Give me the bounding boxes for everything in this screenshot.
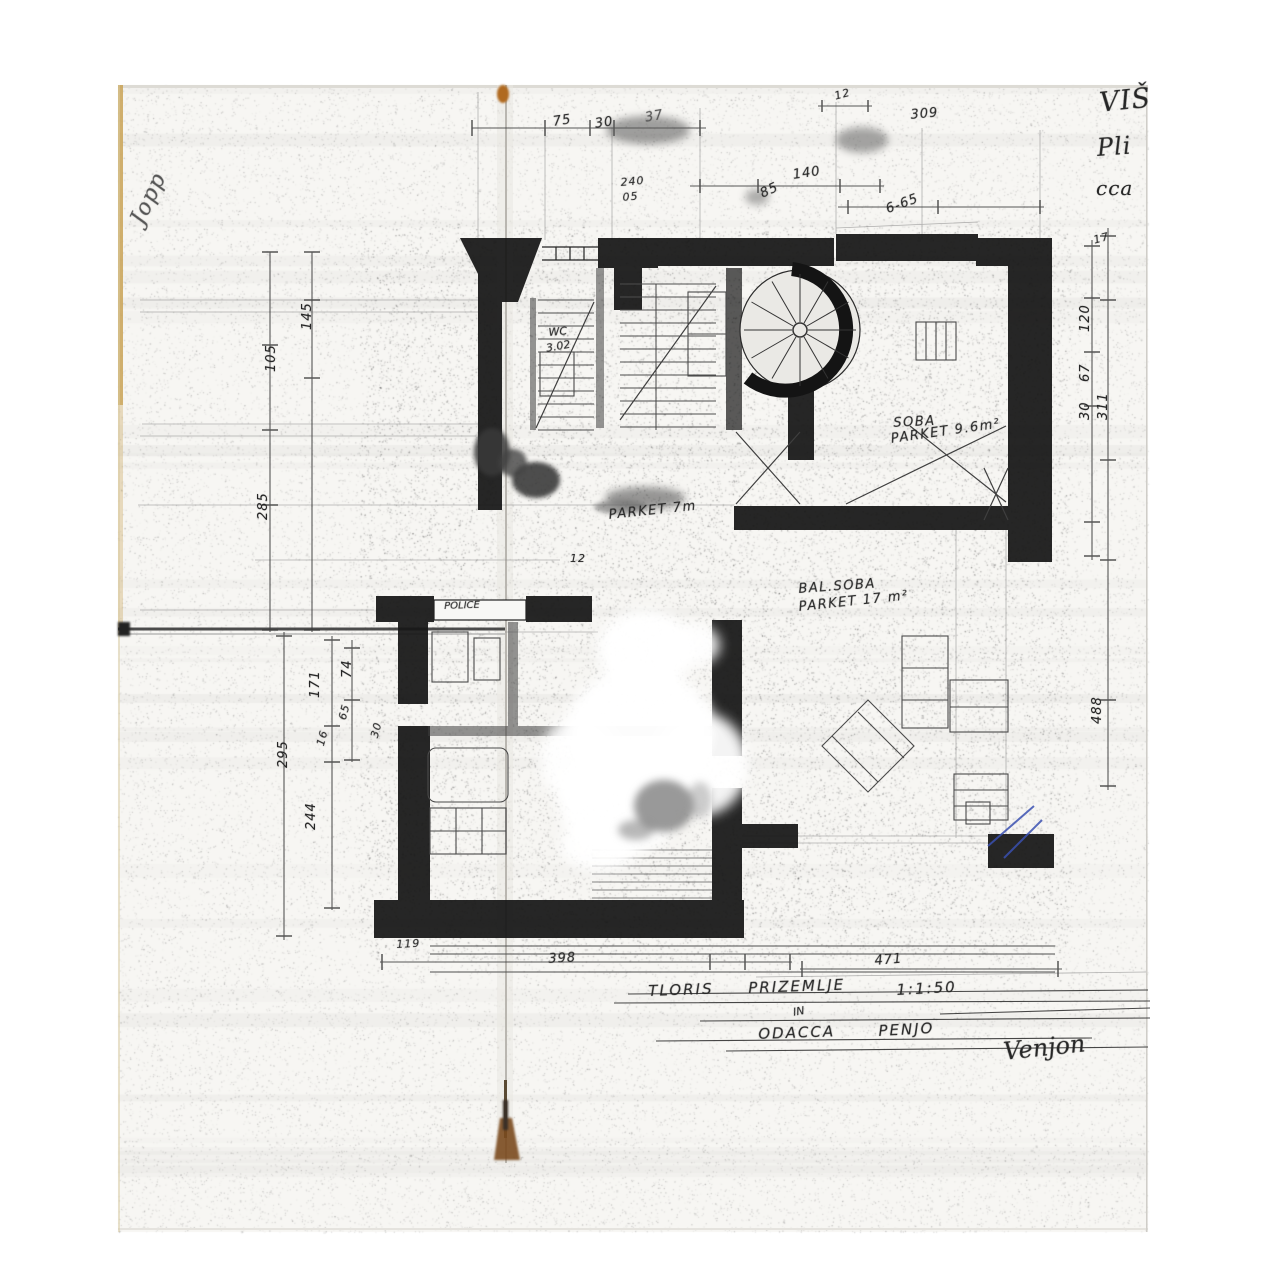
dimension-label: 65 [336, 703, 353, 722]
dimension-label: 309 [910, 106, 939, 123]
dimension-label: 17 [1092, 230, 1111, 247]
dimension-label: 67 [1078, 363, 1093, 382]
niche-label: POLICE [444, 600, 480, 612]
dimension-label: 119 [396, 937, 421, 951]
dimension-label: 120 [1078, 304, 1093, 332]
dimension-label: 295 [276, 740, 291, 768]
footer-word: TLORIS [648, 980, 714, 1000]
dimension-label: 30 [594, 114, 614, 131]
dimension-label: 12 [833, 86, 852, 103]
dimension-label: 30 [1078, 401, 1093, 420]
dimension-label: 85 [758, 180, 781, 201]
dimension-label: 75 [552, 112, 572, 129]
margin-note: Pli [1096, 132, 1132, 162]
dimension-label: 240 [620, 174, 645, 189]
margin-note: cca [1096, 176, 1133, 200]
dimension-label: 105 [264, 344, 279, 372]
dimension-label: 37 [644, 108, 665, 126]
footer-word: PENJO [878, 1019, 935, 1040]
room-area-wc: 3.02 [545, 338, 571, 355]
dimension-label: 311 [1096, 392, 1111, 420]
dimension-label: 285 [256, 492, 271, 520]
dimension-label: 145 [300, 302, 315, 330]
room-label-wc: WC [548, 324, 568, 339]
signature: Venjon [1002, 1029, 1087, 1065]
dimension-label: 12 [570, 552, 586, 565]
footer-word: ODACCA [758, 1022, 835, 1043]
margin-scribble: Jopp [126, 169, 172, 229]
room-floor-hall: PARKET 7m [608, 499, 697, 523]
scanned-floorplan-page: 75 30 37 12 309 140 85 240 05 6-65 145 1… [0, 0, 1262, 1280]
dimension-label: 171 [308, 670, 323, 698]
footer-interline-scribble: IN [792, 1004, 806, 1019]
handwritten-labels: 75 30 37 12 309 140 85 240 05 6-65 145 1… [0, 0, 1262, 1280]
dimension-label: 398 [548, 951, 577, 967]
dimension-label: 30 [368, 721, 385, 740]
dimension-label: 16 [314, 729, 331, 748]
dimension-label: 244 [304, 802, 319, 830]
dimension-label: 05 [622, 190, 639, 204]
footer-word: PRIZEMLJE [748, 976, 845, 997]
margin-note: VIŠ [1098, 83, 1153, 119]
dimension-label: 488 [1090, 696, 1105, 724]
dimension-label: 74 [340, 659, 355, 678]
dimension-label: 140 [792, 164, 822, 183]
footer-scale: 1:1:50 [896, 978, 957, 999]
dimension-label: 6-65 [884, 192, 921, 218]
dimension-label: 471 [874, 952, 903, 969]
